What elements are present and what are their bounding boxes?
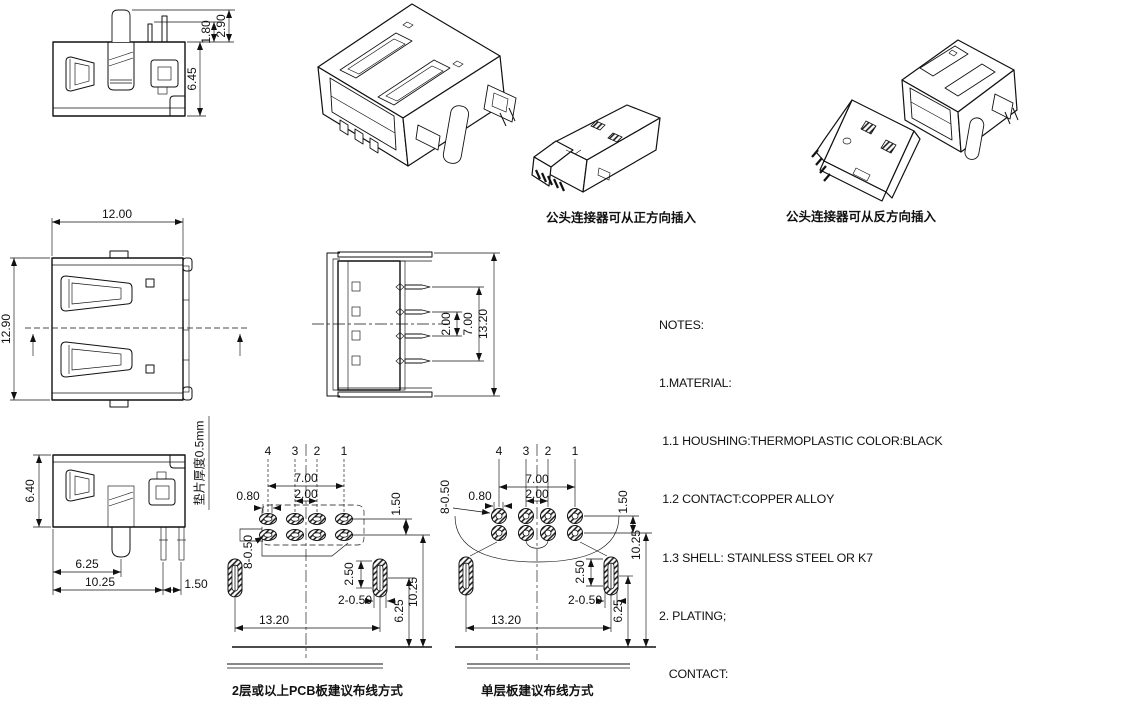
dim-2-00: 2.00 [439, 312, 453, 336]
notes-line: 1.2 CONTACT:COPPER ALLOY [659, 490, 1079, 509]
dim-2-0-50: 2-0.50 [338, 593, 372, 607]
pin-label-3: 3 [292, 444, 299, 458]
dim-7-00: 7.00 [461, 312, 475, 336]
shield-slot-pad [373, 559, 387, 597]
notes-line: 2. PLATING; [659, 607, 1079, 626]
dim-6-25: 6.25 [611, 599, 625, 623]
latch-spring [61, 276, 132, 311]
notes-line: 1.1 HOUSHING:THERMOPLASTIC COLOR:BLACK [659, 432, 1079, 451]
dim-0-80: 0.80 [468, 489, 492, 503]
caption-insert-reverse: 公头连接器可从反方向插入 [786, 206, 936, 225]
dim-1-80: 1.80 [199, 20, 213, 44]
pin-label-3: 3 [523, 444, 530, 458]
notes-block: NOTES: 1.MATERIAL: 1.1 HOUSHING:THERMOPL… [659, 277, 1079, 709]
pad [519, 509, 534, 524]
latch-spring [61, 342, 132, 377]
solder-pins [352, 282, 430, 365]
dim-13-20: 13.20 [476, 309, 490, 339]
dim-6-40: 6.40 [23, 479, 37, 503]
view-pcb-single: 4 3 2 1 8-0.50 0.80 7.00 2.00 1.50 10.25… [438, 444, 656, 660]
pad [287, 530, 304, 541]
pad [336, 530, 353, 541]
solder-pin [179, 527, 184, 560]
pin-label-4: 4 [265, 444, 272, 458]
dim-10-25: 10.25 [85, 575, 115, 589]
pin-label-2: 2 [545, 444, 552, 458]
drawing-sheet: 6.45 1.80 2.90 [0, 0, 1125, 709]
dim-0-80: 0.80 [236, 489, 260, 503]
view-pcb-multilayer: 4 3 2 1 0.80 7.00 2.00 1.50 8-0.50 2.50 … [228, 444, 432, 658]
caption-separators [227, 664, 630, 668]
notes-line: 1.3 SHELL: STAINLESS STEEL OR K7 [659, 549, 1079, 568]
caption-pcb-single: 单层板建议布线方式 [481, 680, 594, 699]
pad [541, 509, 556, 524]
dim-2-50: 2.50 [342, 562, 356, 586]
view-iso-receptacle-reverse [902, 40, 1018, 161]
dim-13-20: 13.20 [491, 613, 521, 627]
pad [568, 509, 583, 524]
view-iso-plug-forward [532, 105, 660, 192]
dim-12-90: 12.90 [0, 314, 13, 344]
mounting-peg [112, 527, 130, 557]
pad [568, 526, 583, 541]
pad [287, 514, 304, 525]
pad [309, 514, 326, 525]
solder-pin [161, 527, 166, 560]
pad [260, 530, 277, 541]
view-front: 12.00 12.90 [0, 207, 247, 407]
notes-line: NOTES: [659, 316, 1079, 335]
pad [336, 514, 353, 525]
gasket-thickness-note: 垫片厚度0.5mm [191, 421, 208, 506]
dim-1-50: 1.50 [616, 490, 630, 514]
view-side-bottom: 6.40 6.25 10.25 1.50 [23, 416, 209, 595]
dim-2-90: 2.90 [214, 14, 228, 38]
dim-6-45: 6.45 [185, 67, 199, 91]
pin-label-1: 1 [341, 444, 348, 458]
caption-insert-forward: 公头连接器可从正方向插入 [546, 207, 696, 226]
pad [309, 530, 326, 541]
shield-slot-pad [228, 559, 242, 597]
notes-line: 1.MATERIAL: [659, 374, 1079, 393]
mounting-peg [112, 10, 130, 42]
dim-13-20: 13.20 [259, 613, 289, 627]
view-side-top: 6.45 1.80 2.90 [53, 10, 235, 116]
shield-slot-pad [459, 557, 473, 595]
dim-8-0-50: 8-0.50 [438, 480, 452, 514]
pin-label-2: 2 [314, 444, 321, 458]
dim-8-0-50: 8-0.50 [241, 535, 255, 569]
dim-10-25: 10.25 [406, 577, 420, 607]
pin-label-4: 4 [496, 444, 503, 458]
view-iso-plug-reverse [812, 100, 920, 201]
dim-1-50: 1.50 [184, 577, 208, 591]
view-rear-pins: 2.00 7.00 13.20 [312, 252, 500, 397]
pin-label-1: 1 [572, 444, 579, 458]
dim-1-50: 1.50 [389, 492, 403, 516]
dim-10-25: 10.25 [629, 530, 643, 560]
dim-12-00: 12.00 [102, 207, 132, 221]
dim-6-25: 6.25 [392, 599, 406, 623]
pad [260, 514, 277, 525]
dim-2-50: 2.50 [573, 560, 587, 584]
pad [541, 526, 556, 541]
dim-2-0-50: 2-0.50 [568, 593, 602, 607]
pad [519, 526, 534, 541]
view-iso-receptacle-main [318, 4, 516, 166]
side-detail [484, 85, 516, 122]
pad [492, 526, 507, 541]
shield-slot-pad [604, 557, 618, 595]
caption-pcb-multilayer: 2层或以上PCB板建议布线方式 [232, 680, 403, 699]
notes-line: CONTACT: [659, 665, 1079, 684]
dim-6-25: 6.25 [75, 557, 99, 571]
